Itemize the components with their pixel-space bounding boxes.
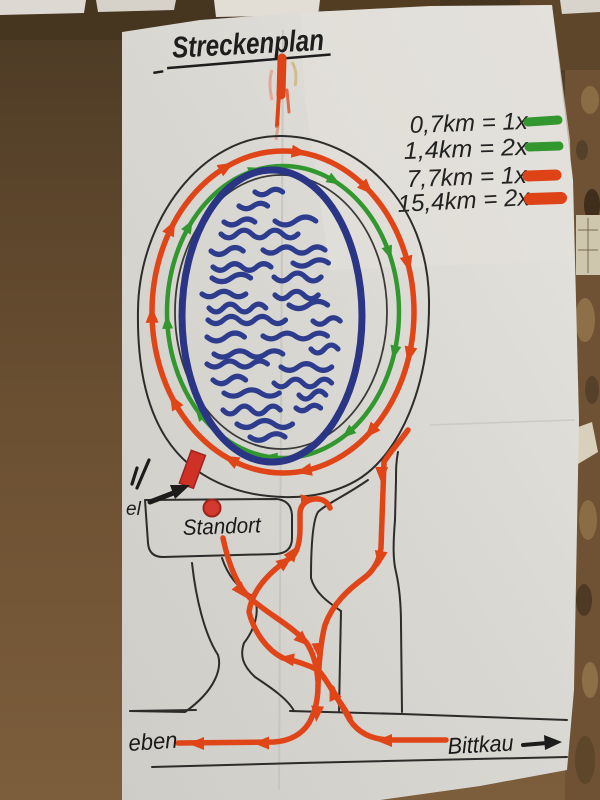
svg-text:eben: eben xyxy=(128,727,179,756)
svg-text:Standort: Standort xyxy=(182,512,262,540)
svg-text:Bittkau: Bittkau xyxy=(447,730,514,759)
svg-text:1,4km = 2x: 1,4km = 2x xyxy=(403,134,529,165)
svg-text:el: el xyxy=(126,499,142,520)
